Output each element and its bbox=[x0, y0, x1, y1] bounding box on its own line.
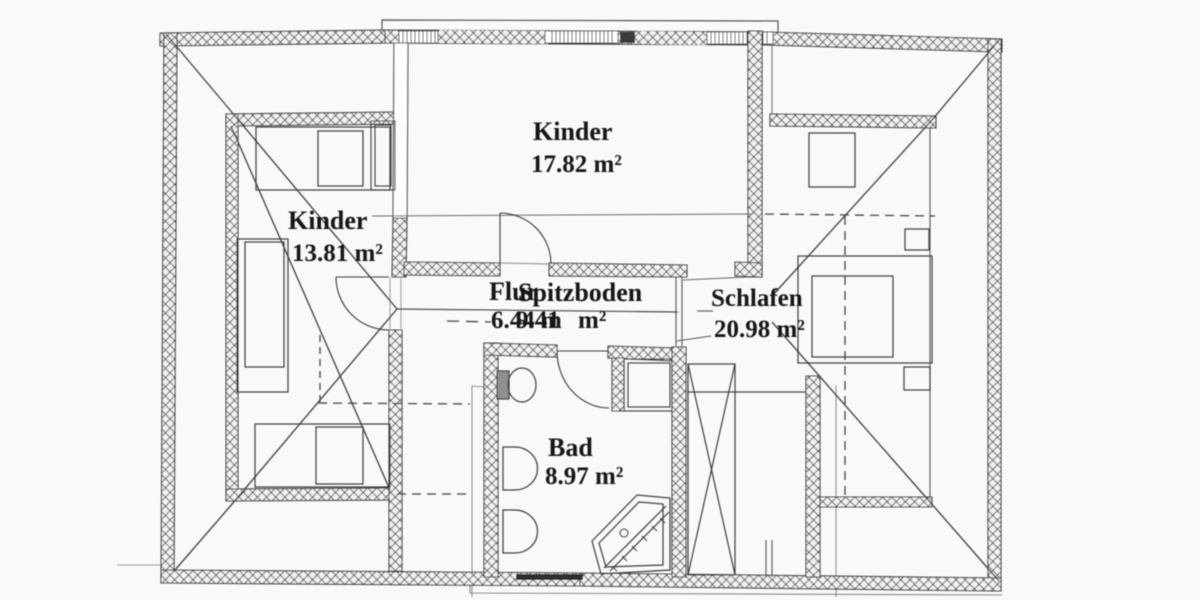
svg-text:8.97 m²: 8.97 m² bbox=[545, 463, 623, 490]
svg-text:13.81 m²: 13.81 m² bbox=[292, 240, 383, 267]
svg-text:20.98 m²: 20.98 m² bbox=[714, 316, 805, 343]
svg-text:Spitzboden: Spitzboden bbox=[518, 278, 643, 307]
svg-text:9.41: 9.41 bbox=[516, 307, 560, 334]
svg-text:Kinder: Kinder bbox=[288, 206, 367, 235]
svg-text:Schlafen: Schlafen bbox=[711, 285, 803, 312]
svg-text:m²: m² bbox=[578, 307, 606, 334]
svg-text:Kinder: Kinder bbox=[533, 117, 612, 146]
svg-text:Bad: Bad bbox=[548, 433, 593, 462]
svg-text:17.82 m²: 17.82 m² bbox=[531, 151, 622, 178]
